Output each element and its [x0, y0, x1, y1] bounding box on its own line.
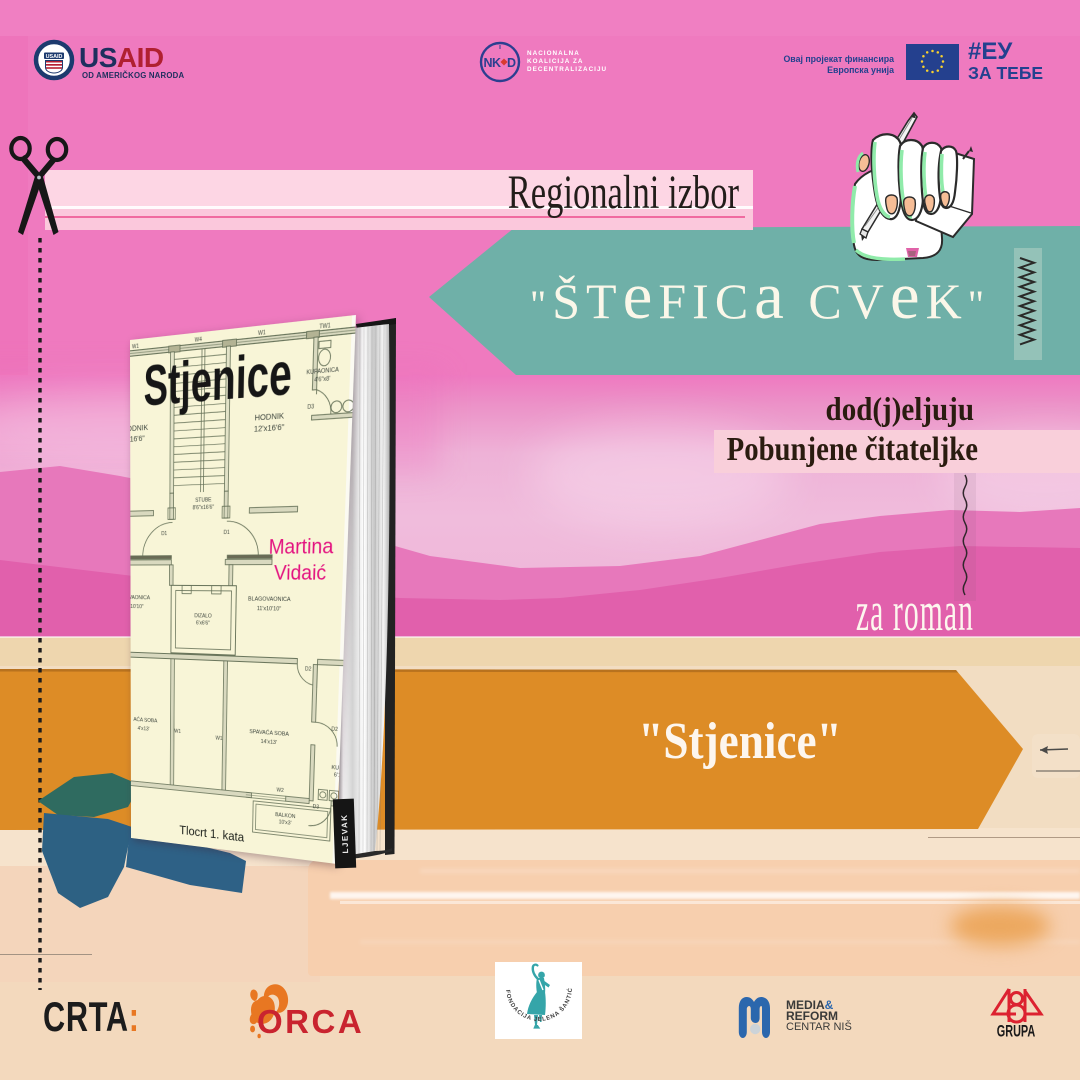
svg-text:USAID: USAID [46, 54, 63, 60]
svg-text:STUBE: STUBE [195, 497, 212, 504]
svg-text:GRUPA: GRUPA [997, 1022, 1035, 1040]
svg-text:W1: W1 [174, 729, 181, 735]
svg-text:D: D [507, 56, 516, 70]
svg-text:D3: D3 [313, 804, 320, 811]
svg-text:TW1: TW1 [319, 323, 331, 331]
svg-text:NK: NK [484, 56, 502, 70]
svg-text:OVAONICA: OVAONICA [130, 595, 150, 601]
svg-text:HODNIK: HODNIK [254, 411, 285, 423]
svg-text:DIZALO: DIZALO [194, 613, 211, 619]
svg-text:11'x10'10": 11'x10'10" [257, 606, 281, 613]
svg-text:4'6"x8': 4'6"x8' [314, 376, 330, 384]
svg-text:6'x6'6": 6'x6'6" [196, 620, 210, 626]
svg-text:D2: D2 [331, 727, 338, 734]
svg-text:D1: D1 [161, 531, 167, 537]
svg-text:W1: W1 [132, 343, 139, 350]
svg-text:ORCA: ORCA [257, 1003, 364, 1040]
svg-text:14'x13': 14'x13' [261, 739, 278, 746]
svg-text:Vidaić: Vidaić [274, 562, 327, 585]
svg-text:8'6"x16'6": 8'6"x16'6" [193, 505, 215, 512]
svg-text:4'x13': 4'x13' [138, 726, 150, 732]
svg-text:D2: D2 [305, 666, 312, 672]
svg-text:Martina: Martina [268, 535, 334, 559]
svg-text:x10'10": x10'10" [130, 604, 144, 610]
svg-text:W4: W4 [195, 337, 202, 344]
svg-text:BLAGOVAONICA: BLAGOVAONICA [248, 596, 291, 603]
svg-text:W1: W1 [215, 736, 222, 742]
svg-text:ODNIK: ODNIK [130, 423, 149, 434]
svg-text:x16'6": x16'6" [130, 433, 145, 443]
svg-text:W1: W1 [258, 330, 266, 338]
svg-text:D1: D1 [224, 530, 230, 536]
svg-text:12'x16'6": 12'x16'6" [254, 422, 285, 434]
svg-text:D3: D3 [307, 404, 314, 411]
svg-text:W2: W2 [276, 787, 283, 794]
